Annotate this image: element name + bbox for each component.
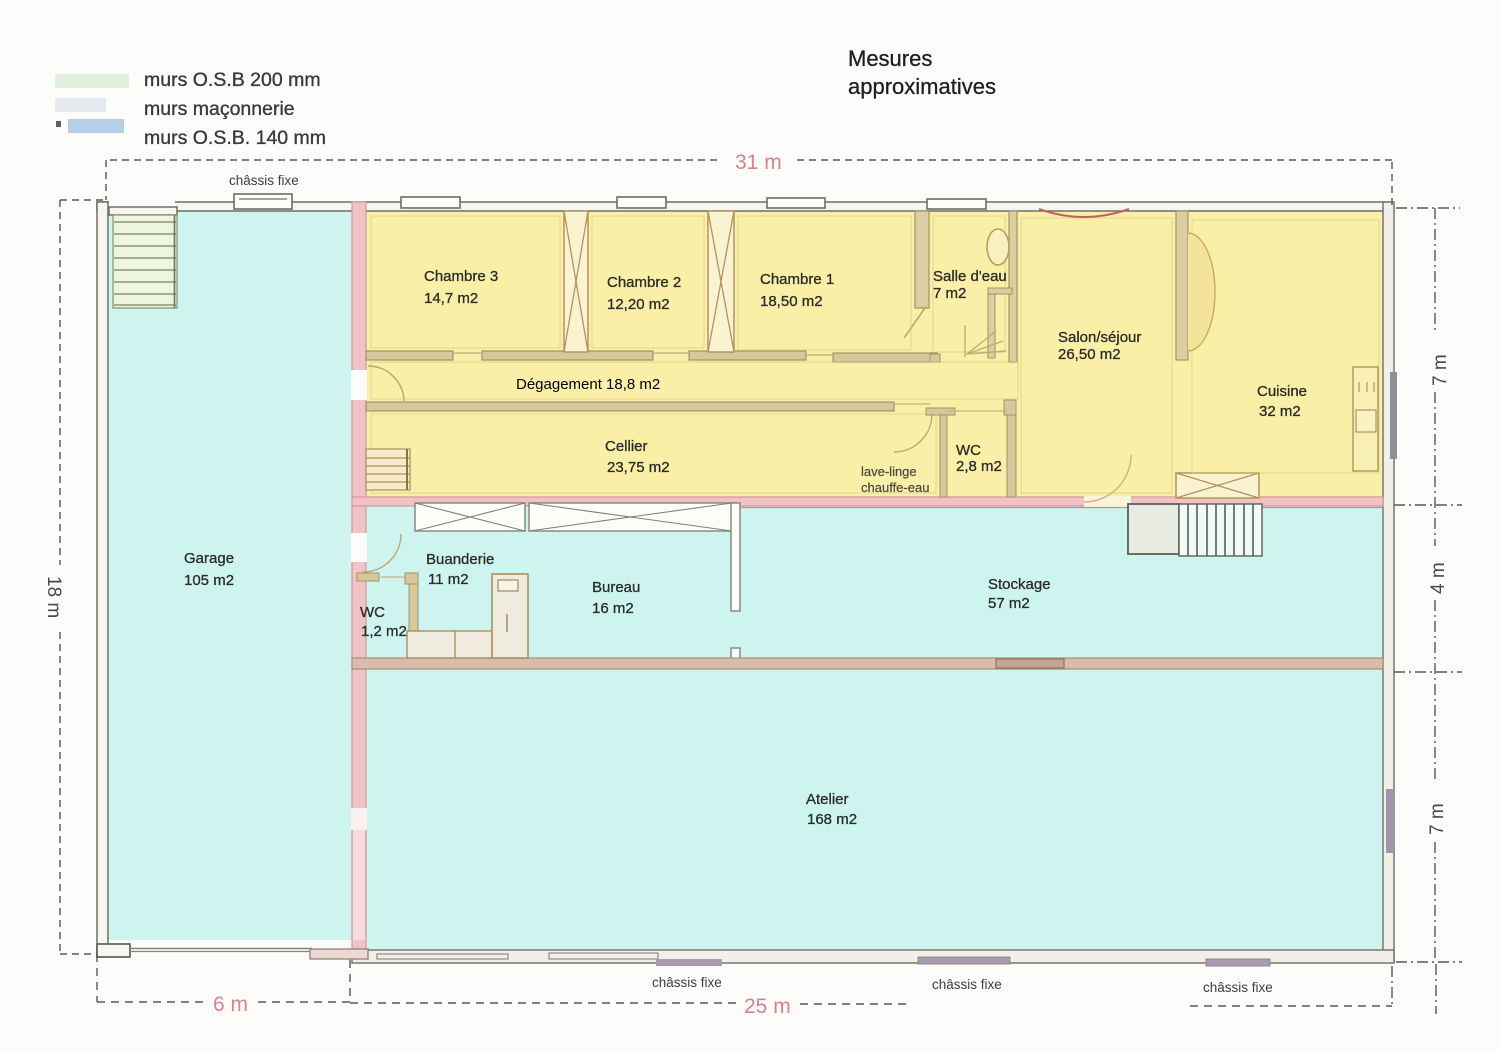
svg-text:Salon/séjour: Salon/séjour (1058, 329, 1141, 346)
svg-text:WC: WC (360, 604, 385, 621)
svg-text:12,20 m2: 12,20 m2 (607, 296, 670, 313)
svg-text:châssis fixe: châssis fixe (932, 977, 1002, 992)
svg-text:105 m2: 105 m2 (184, 572, 234, 589)
svg-text:1,2 m2: 1,2 m2 (361, 623, 407, 640)
svg-text:7 m2: 7 m2 (933, 285, 966, 302)
svg-text:WC: WC (956, 442, 981, 459)
svg-text:4 m: 4 m (1428, 562, 1449, 594)
svg-text:Cellier: Cellier (605, 438, 648, 455)
svg-text:16 m2: 16 m2 (592, 600, 634, 617)
svg-text:6 m: 6 m (213, 993, 248, 1016)
svg-text:murs O.S.B. 140 mm: murs O.S.B. 140 mm (144, 127, 326, 149)
svg-text:lave-linge: lave-linge (861, 464, 917, 479)
svg-text:11 m2: 11 m2 (428, 571, 469, 588)
svg-text:168 m2: 168 m2 (807, 811, 857, 828)
svg-text:23,75 m2: 23,75 m2 (607, 459, 670, 476)
svg-text:Chambre 3: Chambre 3 (424, 268, 498, 285)
svg-text:chauffe-eau: chauffe-eau (861, 480, 929, 495)
svg-text:châssis fixe: châssis fixe (1203, 980, 1273, 995)
svg-text:Bureau: Bureau (592, 579, 640, 596)
svg-text:châssis fixe: châssis fixe (229, 173, 299, 188)
svg-text:murs maçonnerie: murs maçonnerie (144, 98, 295, 120)
svg-text:18 m: 18 m (43, 576, 64, 618)
svg-text:Garage: Garage (184, 550, 234, 567)
svg-text:26,50 m2: 26,50 m2 (1058, 346, 1121, 363)
svg-text:Mesures: Mesures (848, 46, 932, 71)
svg-text:Stockage: Stockage (988, 576, 1051, 593)
svg-text:Chambre 2: Chambre 2 (607, 274, 681, 291)
svg-text:18,50 m2: 18,50 m2 (760, 293, 823, 310)
svg-text:32 m2: 32 m2 (1259, 403, 1301, 420)
svg-text:2,8 m2: 2,8 m2 (956, 458, 1002, 475)
svg-text:57 m2: 57 m2 (988, 595, 1030, 612)
svg-text:Cuisine: Cuisine (1257, 383, 1307, 400)
svg-text:Chambre 1: Chambre 1 (760, 271, 834, 288)
svg-text:Buanderie: Buanderie (426, 551, 494, 568)
svg-text:31 m: 31 m (735, 151, 782, 174)
svg-text:Atelier: Atelier (806, 791, 849, 808)
svg-text:châssis fixe: châssis fixe (652, 975, 722, 990)
svg-text:25 m: 25 m (744, 995, 791, 1018)
svg-text:approximatives: approximatives (848, 74, 996, 99)
svg-text:murs O.S.B 200 mm: murs O.S.B 200 mm (144, 69, 321, 91)
svg-text:7 m: 7 m (1427, 803, 1448, 835)
svg-text:7 m: 7 m (1430, 354, 1451, 386)
svg-text:Salle d'eau: Salle d'eau (933, 268, 1007, 285)
svg-text:14,7 m2: 14,7 m2 (424, 290, 478, 307)
svg-text:Dégagement 18,8 m2: Dégagement 18,8 m2 (516, 376, 660, 393)
